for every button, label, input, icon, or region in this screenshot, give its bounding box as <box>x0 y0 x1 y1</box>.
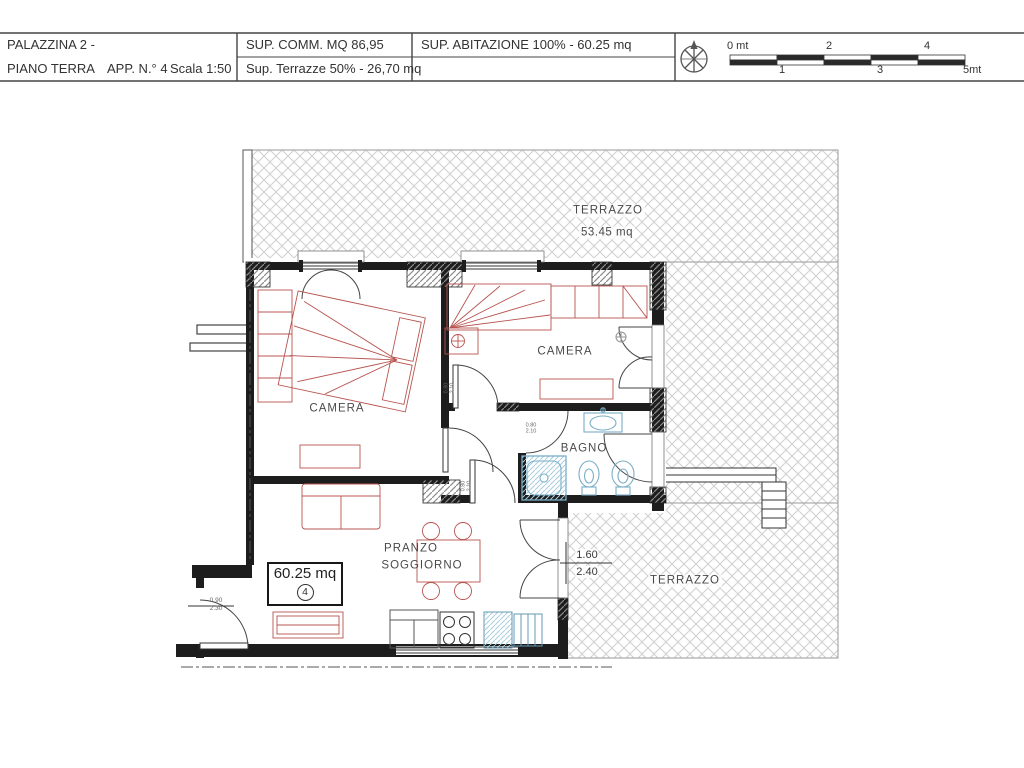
living-label-2: SOGGIORNO <box>379 560 464 573</box>
scalebar-2: 2 <box>826 40 832 52</box>
scalebar-4: 4 <box>924 40 930 52</box>
scale-label: Scala 1:50 <box>170 61 231 76</box>
dim-door-a-h: 2.10 <box>449 383 455 394</box>
dim-door-a: 0.80 2.10 <box>445 383 456 394</box>
dim-balcony-h: 2.40 <box>575 566 598 578</box>
surface-commercial: SUP. COMM. MQ 86,95 <box>246 37 384 52</box>
kitchen-cabinet <box>273 612 343 638</box>
terrace-top-area: 53.45 mq <box>579 227 635 240</box>
surface-terraces: Sup. Terrazze 50% - 26,70 mq <box>246 61 421 76</box>
dim-door-b-h: 2.10 <box>466 481 472 492</box>
bagno-label: BAGNO <box>559 443 610 456</box>
living-label-1: PRANZO <box>382 543 440 556</box>
terrace-right-hatch <box>664 262 838 503</box>
dim-door-b: 0.80 2.10 <box>462 481 473 492</box>
terrace-top-label: TERRAZZO <box>571 205 645 218</box>
terrace-bottom-label: TERRAZZO <box>648 575 722 588</box>
dim-door-c-h: 2.10 <box>526 428 537 434</box>
scalebar-5: 5mt <box>963 64 981 76</box>
surface-habitable: SUP. ABITAZIONE 100% - 60.25 mq <box>421 37 632 52</box>
dim-balcony-w: 1.60 <box>575 549 598 561</box>
dim-entrance-h: 2.30 <box>210 606 223 613</box>
scalebar-0: 0 mt <box>727 40 748 52</box>
scalebar-3: 3 <box>877 64 883 76</box>
apartment-label: APP. N.° 4 <box>107 61 168 76</box>
scalebar-1: 1 <box>779 64 785 76</box>
shower <box>522 456 566 500</box>
floorplan-sheet: PALAZZINA 2 - PIANO TERRA APP. N.° 4 Sca… <box>0 0 1024 768</box>
camera-right-label: CAMERA <box>535 346 594 359</box>
unit-number-badge: 4 <box>297 584 314 601</box>
scale-bar <box>730 55 965 65</box>
terrace-top-hatch <box>243 150 838 262</box>
floor-plan-svg <box>0 0 1024 768</box>
camera-left-label: CAMERA <box>307 403 366 416</box>
wall-symbol <box>616 332 626 342</box>
compass-icon <box>681 40 707 72</box>
dim-door-c: 0.80 2.10 <box>526 424 537 435</box>
boundary-wall-stubs <box>190 325 252 351</box>
dim-entrance-w: 0.90 <box>210 598 223 605</box>
area-box: 60.25 mq 4 <box>267 562 343 606</box>
building-title: PALAZZINA 2 - <box>7 37 95 52</box>
area-box-value: 60.25 mq <box>269 565 341 582</box>
floor-label: PIANO TERRA <box>7 61 95 76</box>
